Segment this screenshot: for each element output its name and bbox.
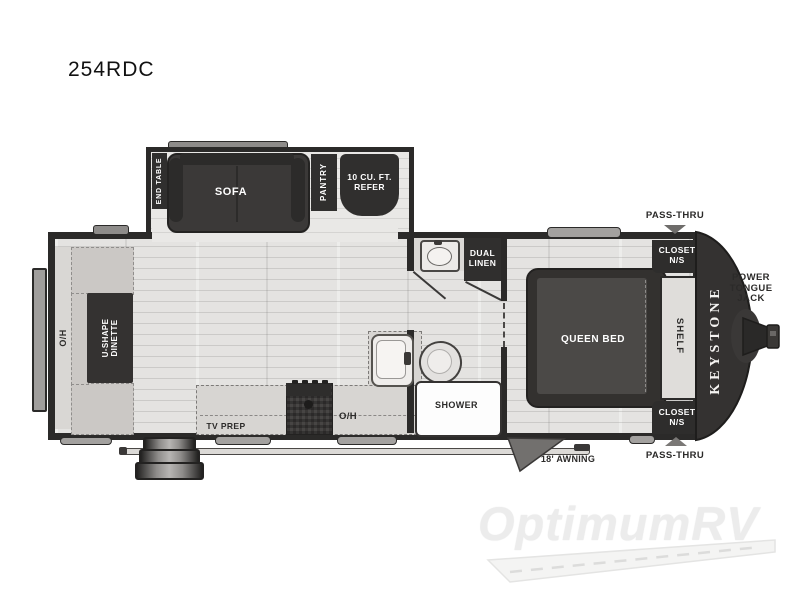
sofa-backrest xyxy=(180,153,294,165)
window-bottom-rear xyxy=(60,437,112,445)
stove-knob-1 xyxy=(292,380,298,384)
sofa-label: SOFA xyxy=(201,186,261,198)
queen-bed-label: QUEEN BED xyxy=(548,333,638,347)
kitchen-faucet xyxy=(404,352,411,365)
bed-foot-dashed-line xyxy=(645,280,646,392)
floorplan-page: 254RDC END TABLE SOFA PANTRY 10 CU. FT. … xyxy=(0,0,800,600)
rear-bumper xyxy=(32,268,47,412)
pass-thru-bottom-arrow-icon xyxy=(665,437,687,446)
pass-thru-top-label: PASS-THRU xyxy=(637,210,713,222)
pantry-label: PANTRY xyxy=(318,155,330,209)
window-top xyxy=(547,227,621,238)
awning-rail-right-cap xyxy=(574,444,590,451)
window-bottom-kitchen xyxy=(215,436,271,445)
dual-linen-label: DUAL LINEN xyxy=(464,244,501,274)
hitch-tip-highlight xyxy=(770,331,776,336)
awning-rail-left-cap xyxy=(119,447,127,455)
sofa-armrest-left xyxy=(169,158,183,222)
end-table-label: END TABLE xyxy=(154,151,166,211)
pass-thru-bottom-label: PASS-THRU xyxy=(637,450,713,462)
shelf-label: SHELF xyxy=(673,309,685,363)
kitchen-overhead-label: O/H xyxy=(332,411,364,423)
hitch-cone xyxy=(743,318,770,355)
kitchen-sink-basin xyxy=(376,340,406,379)
bath-wall-top-left xyxy=(407,238,414,271)
window-bottom-bath xyxy=(337,436,397,445)
toilet-bowl xyxy=(427,349,452,374)
front-cap xyxy=(688,224,800,448)
pocket-door xyxy=(503,303,505,347)
watermark-road-icon xyxy=(480,530,790,590)
window-bottom-front xyxy=(629,435,655,444)
bathroom-sink-basin xyxy=(427,247,452,266)
closet-bottom-label: CLOSET N/S xyxy=(652,405,702,431)
shower-label: SHOWER xyxy=(415,398,498,412)
tv-prep-label: TV PREP xyxy=(198,422,254,432)
awning-label: 18' AWNING xyxy=(536,453,600,465)
dinette-label: U-SHAPE DINETTE xyxy=(99,310,121,366)
page-title: 254RDC xyxy=(68,58,155,82)
stove-knob-4 xyxy=(322,380,328,384)
bathroom-faucet-icon xyxy=(434,240,442,245)
sofa-armrest-right xyxy=(291,158,305,222)
pass-thru-top-arrow-icon xyxy=(664,225,686,234)
dinette-bench-top xyxy=(71,247,134,295)
stove-knob-3 xyxy=(312,380,318,384)
entry-step-3 xyxy=(135,462,204,480)
roof-marker-topleft xyxy=(93,225,129,235)
closet-top-label: CLOSET N/S xyxy=(652,243,702,269)
power-tongue-jack-label: POWER TONGUE JACK xyxy=(718,270,784,308)
stove-knob-2 xyxy=(302,380,308,384)
stove-burner-strip xyxy=(286,383,331,396)
hitch-tip xyxy=(767,325,779,348)
refrigerator-label: 10 CU. FT. REFER xyxy=(340,168,399,198)
dinette-bench-bottom xyxy=(71,383,134,435)
dinette-overhead-label: O/H xyxy=(57,323,69,353)
stove-center-knob xyxy=(304,400,313,409)
bedroom-wall-top xyxy=(501,238,507,301)
